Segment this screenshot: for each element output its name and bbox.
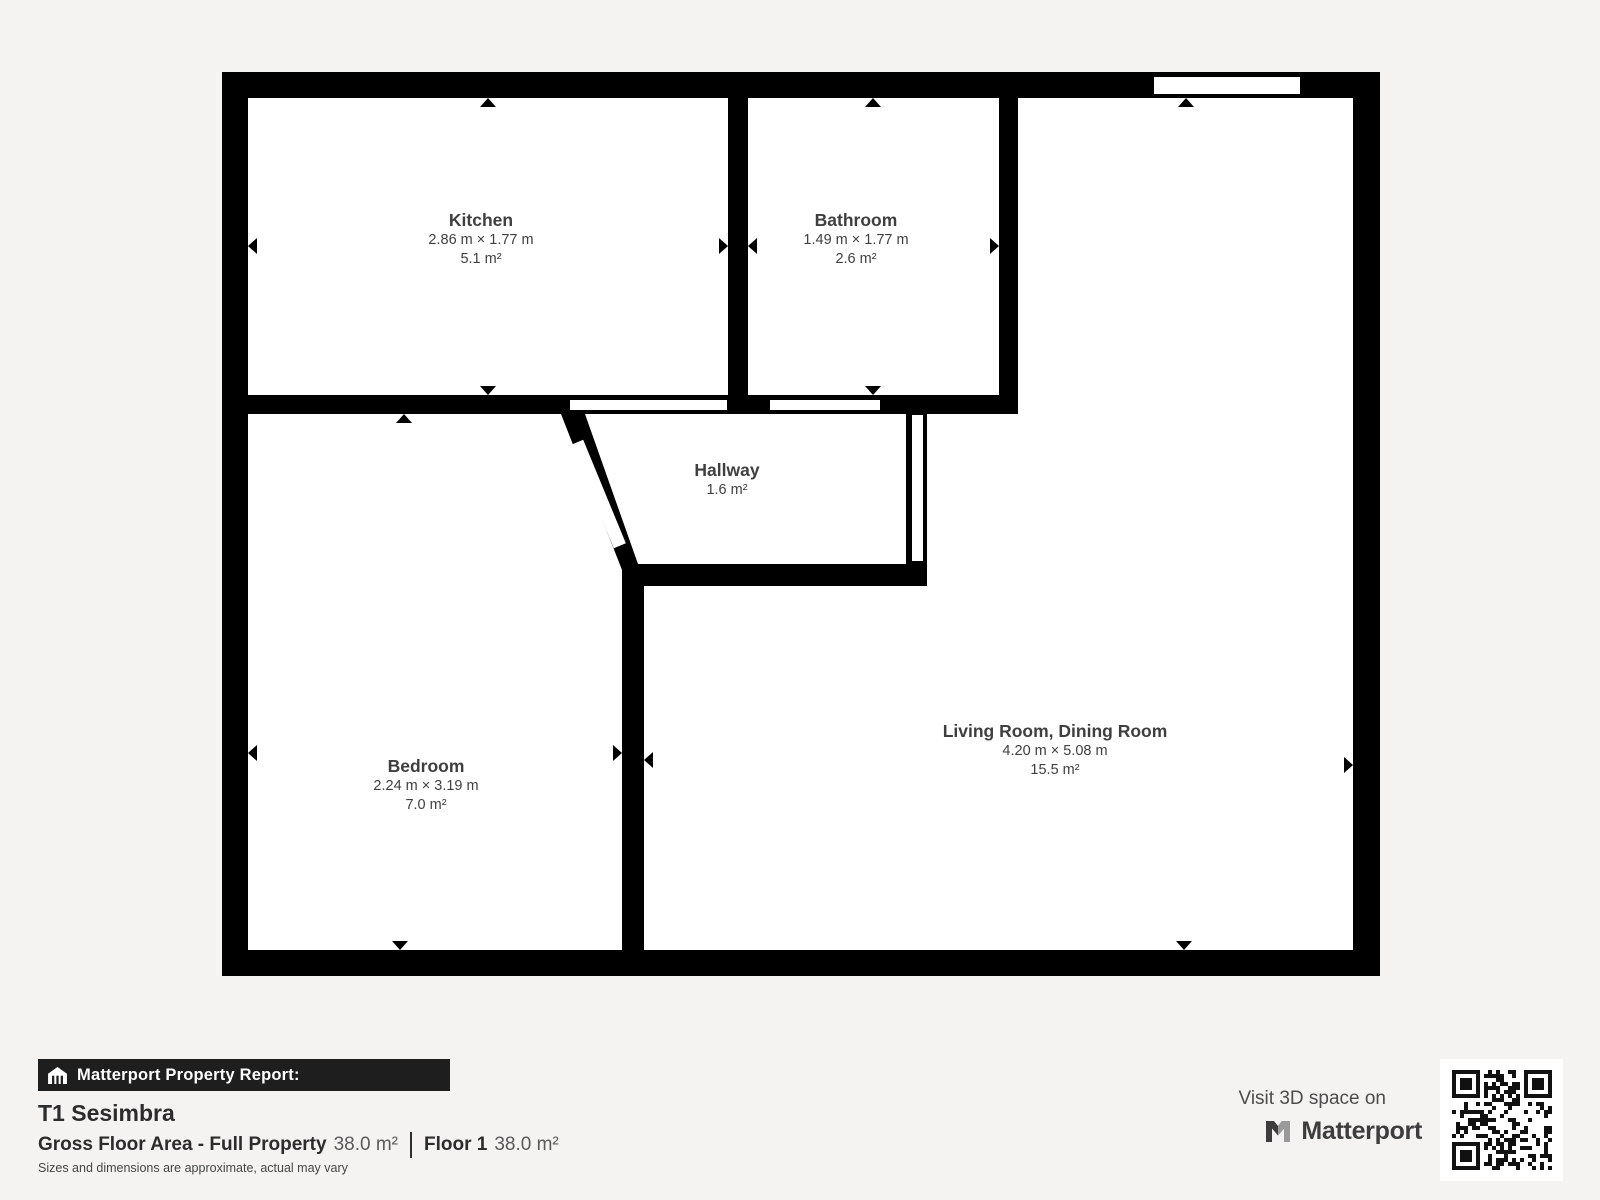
room-area: 15.5 m² [895,761,1215,780]
kitchen-dim-arrow-left [248,238,257,254]
matterport-m-icon [1264,1118,1292,1145]
living-dim-arrow-left [644,752,653,768]
qr-code [1452,1070,1552,1170]
room-area: 7.0 m² [266,796,586,815]
floor-value: 38.0 m² [494,1134,558,1156]
bedroom-dim-arrow-right [613,745,622,761]
room-dimensions: 1.49 m × 1.77 m [696,231,1016,250]
living-dim-arrow-up [1178,98,1194,107]
bathroom-label: Bathroom 1.49 m × 1.77 m 2.6 m² [696,209,1016,269]
kitchen-door-opening [570,400,727,410]
room-name: Kitchen [321,209,641,231]
house-icon [48,1067,67,1084]
floor-area-stats: Gross Floor Area - Full Property 38.0 m²… [38,1131,559,1158]
bedroom-dim-arrow-up [396,414,412,423]
stats-divider [410,1132,412,1158]
report-bar-label: Matterport Property Report: [77,1066,300,1085]
window [1152,75,1302,96]
living-room-label: Living Room, Dining Room 4.20 m × 5.08 m… [895,720,1215,780]
matterport-logo: Matterport [1264,1117,1422,1146]
bathroom-dim-arrow-up [865,98,881,107]
room-name: Bedroom [266,755,586,777]
room-dimensions: 2.24 m × 3.19 m [266,777,586,796]
visit-3d-text: Visit 3D space on [1238,1088,1386,1110]
room-dimensions: 2.86 m × 1.77 m [321,231,641,250]
floor-label: Floor 1 [424,1134,487,1156]
room-name: Living Room, Dining Room [895,720,1215,742]
room-area: 2.6 m² [696,250,1016,269]
room-bedroom [248,414,622,950]
hallway-label: Hallway 1.6 m² [567,459,887,500]
room-area: 5.1 m² [321,250,641,269]
kitchen-dim-arrow-down [480,386,496,395]
room-area: 1.6 m² [567,481,887,500]
living-dim-arrow-down [1176,941,1192,950]
living-dim-arrow-right [1344,757,1353,773]
qr-code-card [1440,1059,1563,1181]
property-report-page: Kitchen 2.86 m × 1.77 m 5.1 m² Bathroom … [0,0,1600,1200]
visit-3d-block: Visit 3D space on Matterport [1100,1088,1422,1146]
bathroom-door-opening [770,400,880,410]
bedroom-dim-arrow-left [248,745,257,761]
matterport-wordmark: Matterport [1301,1117,1422,1146]
bedroom-label: Bedroom 2.24 m × 3.19 m 7.0 m² [266,755,586,815]
kitchen-label: Kitchen 2.86 m × 1.77 m 5.1 m² [321,209,641,269]
report-header-bar: Matterport Property Report: [38,1059,450,1091]
room-dimensions: 4.20 m × 5.08 m [895,742,1215,761]
bedroom-dim-arrow-down [392,941,408,950]
kitchen-dim-arrow-up [480,98,496,107]
property-name: T1 Sesimbra [38,1100,175,1127]
bathroom-dim-arrow-down [865,386,881,395]
disclaimer-text: Sizes and dimensions are approximate, ac… [38,1161,348,1175]
gross-floor-area-value: 38.0 m² [334,1134,398,1156]
gross-floor-area-label: Gross Floor Area - Full Property [38,1134,327,1156]
room-name: Bathroom [696,209,1016,231]
hallway-living-door-opening [912,415,923,561]
room-name: Hallway [567,459,887,481]
